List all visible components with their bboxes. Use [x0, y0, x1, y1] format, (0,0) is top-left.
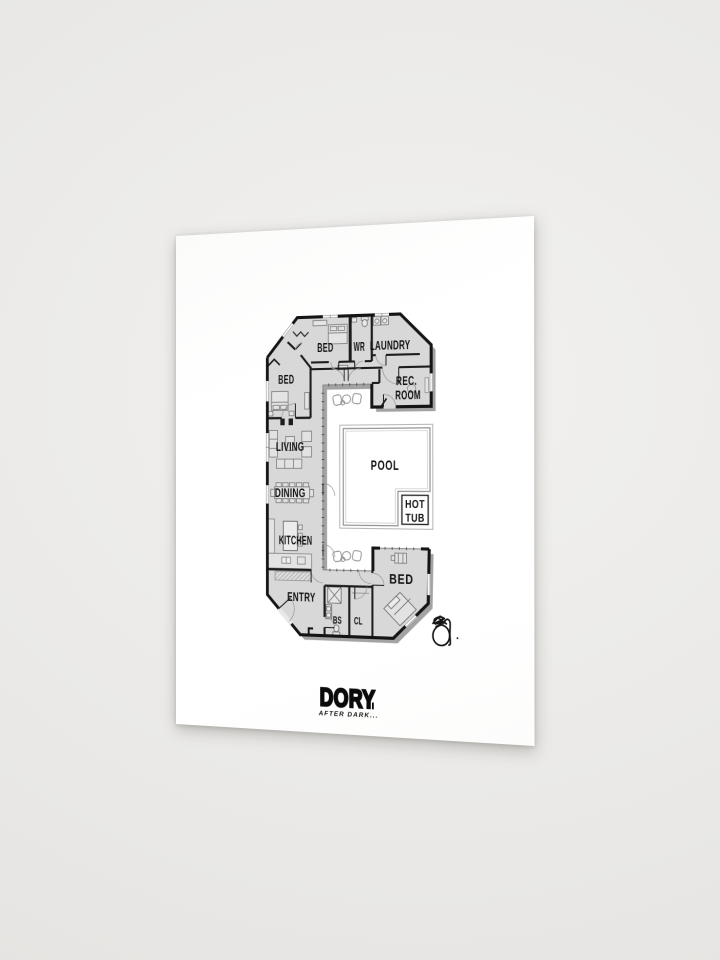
svg-text:CL: CL	[354, 614, 363, 627]
svg-text:BED: BED	[278, 374, 294, 388]
svg-text:LIVING: LIVING	[276, 441, 304, 455]
svg-text:ENTRY: ENTRY	[287, 591, 316, 606]
svg-text:KITCHEN: KITCHEN	[279, 534, 312, 549]
svg-text:BED: BED	[317, 341, 333, 356]
svg-text:TUB: TUB	[405, 512, 424, 526]
svg-text:BS: BS	[333, 613, 342, 626]
svg-text:POOL: POOL	[371, 459, 400, 474]
svg-text:REC.: REC.	[396, 375, 417, 389]
svg-text:DINING: DINING	[275, 487, 306, 501]
svg-text:LAUNDRY: LAUNDRY	[370, 339, 411, 354]
svg-text:HOT: HOT	[405, 498, 425, 512]
svg-text:BED: BED	[389, 573, 413, 588]
svg-text:WR: WR	[354, 339, 365, 354]
svg-text:DORY: DORY	[320, 684, 376, 715]
svg-text:ROOM: ROOM	[395, 389, 421, 404]
svg-text:AFTER DARK...: AFTER DARK...	[318, 711, 379, 720]
